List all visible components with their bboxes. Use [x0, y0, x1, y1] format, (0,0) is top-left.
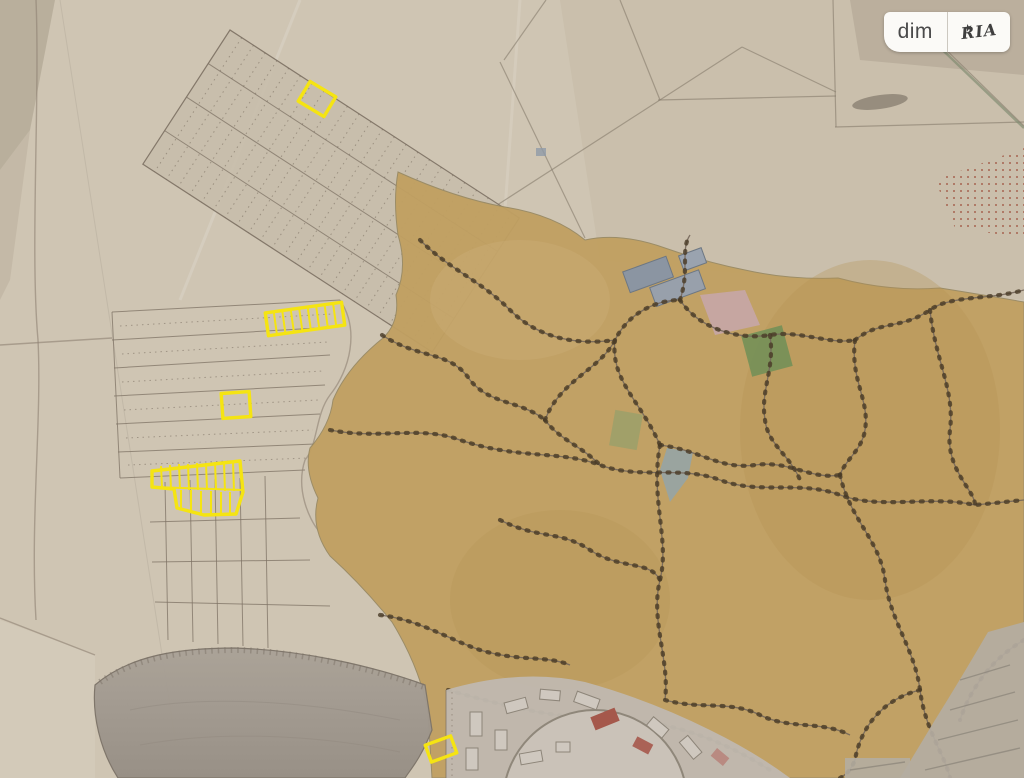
hatched-area	[845, 758, 910, 778]
watermark-dim-label: dim	[884, 20, 947, 44]
ochre-texture	[740, 260, 1000, 600]
watermark-ria: ★ RIA	[948, 22, 1011, 42]
watermark-badge: dim ★ RIA	[884, 12, 1010, 52]
watermark-ria-label: RIA	[960, 20, 998, 43]
paper-map	[0, 0, 1024, 778]
small-building	[536, 148, 546, 156]
map-photo: dim ★ RIA	[0, 0, 1024, 778]
